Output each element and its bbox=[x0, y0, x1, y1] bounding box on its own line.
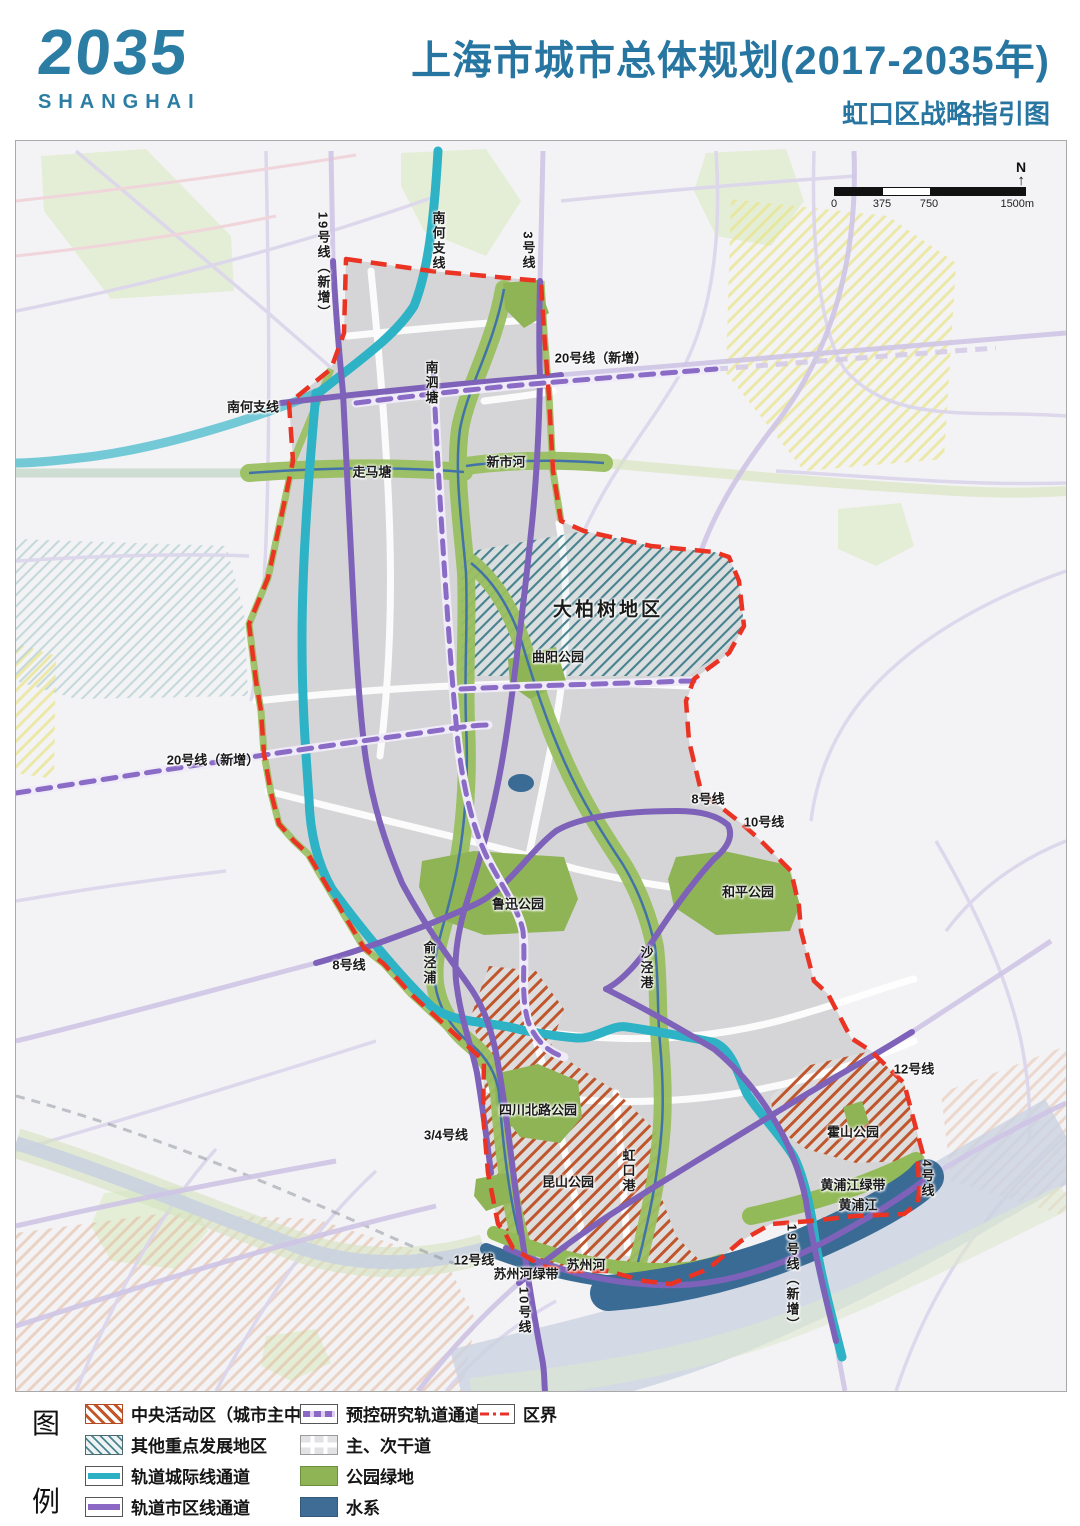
legend-title-char: 例 bbox=[32, 1480, 60, 1520]
page-title: 上海市城市总体规划(2017-2035年) bbox=[411, 28, 1050, 86]
map-canvas: 03757501500m N ↑ 19号线（新增）南何支线3号线20号线（新增）… bbox=[15, 140, 1067, 1392]
legend-item: 轨道城际线通道 bbox=[85, 1460, 335, 1491]
legend-title-char: 图 bbox=[32, 1402, 60, 1442]
legend-label: 水系 bbox=[346, 1494, 380, 1519]
pond bbox=[508, 774, 534, 792]
legend-item: 区界 bbox=[477, 1398, 557, 1429]
scale-tick: 0 bbox=[831, 198, 837, 210]
legend-label: 预控研究轨道通道 bbox=[346, 1401, 482, 1426]
scale-tick: 750 bbox=[920, 198, 938, 210]
legend-label: 公园绿地 bbox=[346, 1463, 414, 1488]
scale-bar: 03757501500m bbox=[834, 187, 1026, 213]
north-arrow-icon: ↑ bbox=[1016, 174, 1026, 187]
legend-title: 图 例 bbox=[32, 1402, 60, 1520]
scale-tick: 1500m bbox=[1000, 198, 1034, 210]
legend-swatch-line-purple-dashed bbox=[300, 1404, 338, 1424]
legend-label: 区界 bbox=[523, 1401, 557, 1426]
legend-item: 其他重点发展地区 bbox=[85, 1429, 335, 1460]
legend-swatch-fill-green bbox=[300, 1466, 338, 1486]
legend-item: 公园绿地 bbox=[300, 1460, 482, 1491]
legend-label: 其他重点发展地区 bbox=[131, 1432, 267, 1457]
legend-item: 水系 bbox=[300, 1491, 482, 1522]
legend-item: 轨道市区线通道 bbox=[85, 1491, 335, 1522]
page-subtitle: 虹口区战略指引图 bbox=[411, 94, 1050, 131]
legend-item: 预控研究轨道通道 bbox=[300, 1398, 482, 1429]
logo-city: SHANGHAI bbox=[38, 91, 201, 114]
page: 2035 SHANGHAI 上海市城市总体规划(2017-2035年) 虹口区战… bbox=[0, 0, 1080, 1526]
header: 2035 SHANGHAI 上海市城市总体规划(2017-2035年) 虹口区战… bbox=[0, 0, 1080, 140]
scale-bar-segments bbox=[834, 187, 1026, 196]
legend-swatch-line-red-dashed bbox=[477, 1404, 515, 1424]
legend-label: 主、次干道 bbox=[346, 1432, 431, 1457]
legend-swatch-hatch-orange bbox=[85, 1404, 123, 1424]
legend-column: 区界 bbox=[477, 1398, 557, 1429]
map-graphic bbox=[16, 141, 1066, 1391]
legend-swatch-fill-blue bbox=[300, 1497, 338, 1517]
legend-label: 轨道市区线通道 bbox=[131, 1494, 250, 1519]
logo-year: 2035 bbox=[35, 20, 203, 84]
legend-swatch-line-cyan bbox=[85, 1466, 123, 1486]
legend-swatch-hatch-teal bbox=[85, 1435, 123, 1455]
legend-swatch-line-purple bbox=[85, 1497, 123, 1517]
legend-column: 预控研究轨道通道主、次干道公园绿地水系 bbox=[300, 1398, 482, 1522]
logo: 2035 SHANGHAI bbox=[38, 20, 201, 114]
legend: 图 例 中央活动区（城市主中心）其他重点发展地区轨道城际线通道轨道市区线通道预控… bbox=[0, 1398, 1080, 1526]
scale-bar-ticks: 03757501500m bbox=[834, 198, 1026, 213]
legend-swatch-road bbox=[300, 1435, 338, 1455]
scale-tick: 375 bbox=[873, 198, 891, 210]
north-arrow: N ↑ bbox=[1016, 161, 1026, 187]
title-block: 上海市城市总体规划(2017-2035年) 虹口区战略指引图 bbox=[411, 28, 1050, 131]
legend-item: 主、次干道 bbox=[300, 1429, 482, 1460]
legend-item: 中央活动区（城市主中心） bbox=[85, 1398, 335, 1429]
legend-column: 中央活动区（城市主中心）其他重点发展地区轨道城际线通道轨道市区线通道 bbox=[85, 1398, 335, 1522]
legend-label: 轨道城际线通道 bbox=[131, 1463, 250, 1488]
